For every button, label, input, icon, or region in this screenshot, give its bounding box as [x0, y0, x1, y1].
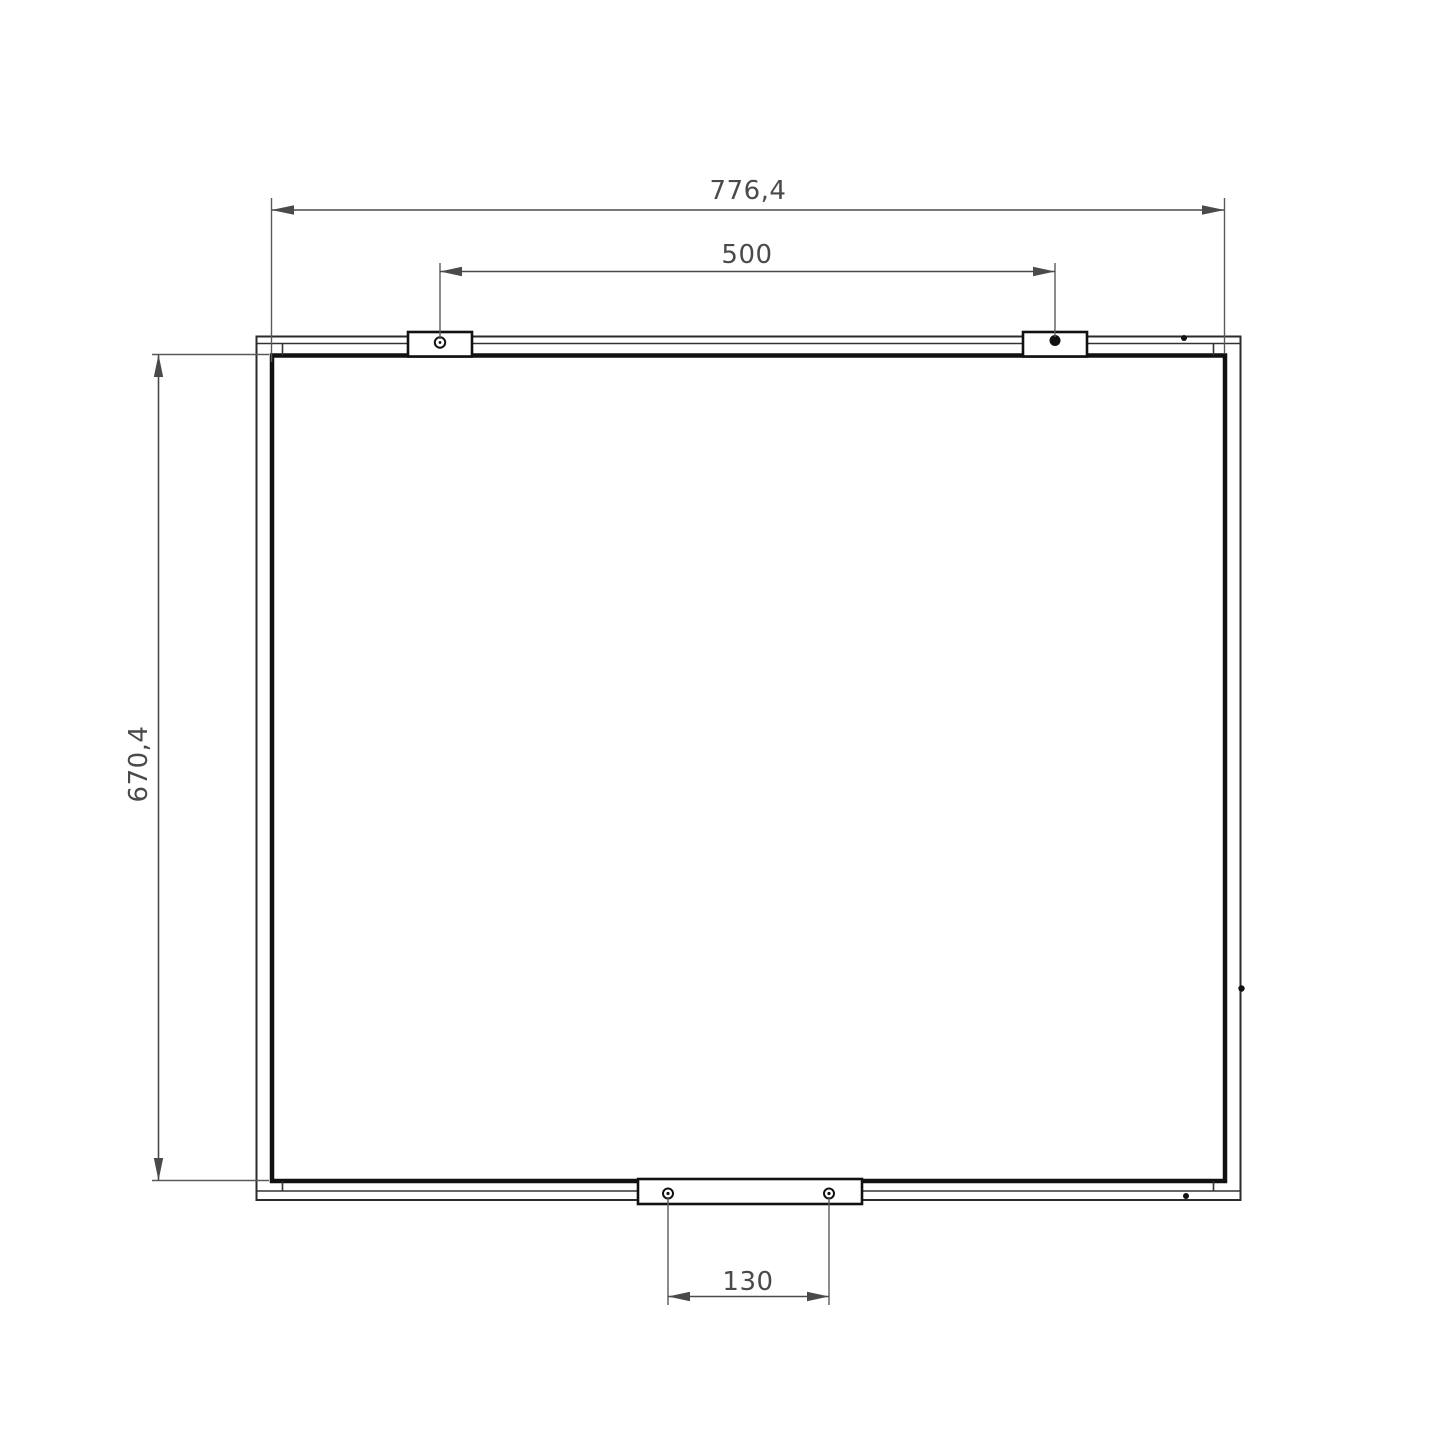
arrow-right-icon — [807, 1292, 829, 1301]
dim-overall-height-label: 670,4 — [124, 726, 154, 803]
dim-bottom-hole-spacing: 130 — [668, 1197, 829, 1305]
arrow-left-icon — [440, 267, 462, 276]
bracket-hole-right-center — [827, 1192, 830, 1195]
drawing-canvas: 776,4 500 670,4 130 — [0, 0, 1445, 1445]
technical-drawing: 776,4 500 670,4 130 — [0, 0, 1445, 1445]
tab-left-hole-center — [439, 341, 442, 344]
arrow-left-icon — [272, 205, 295, 214]
arrow-left-icon — [668, 1292, 690, 1301]
dim-overall-width-label: 776,4 — [710, 176, 787, 206]
dim-top-hole-spacing: 500 — [440, 240, 1055, 339]
arrow-right-icon — [1202, 205, 1225, 214]
arrow-right-icon — [1033, 267, 1055, 276]
detail-dot-top-right — [1181, 335, 1187, 341]
detail-dot-bottom-right — [1183, 1193, 1189, 1199]
dim-bottom-hole-spacing-label: 130 — [722, 1267, 773, 1297]
dim-top-hole-spacing-label: 500 — [721, 240, 772, 270]
bracket-hole-left-center — [666, 1192, 669, 1195]
detail-dot-right-edge — [1238, 985, 1244, 991]
panel-inner-frame — [272, 356, 1225, 1182]
panel — [257, 332, 1245, 1204]
arrow-up-icon — [154, 355, 163, 378]
arrow-down-icon — [154, 1158, 163, 1181]
dim-overall-height: 670,4 — [124, 355, 269, 1181]
